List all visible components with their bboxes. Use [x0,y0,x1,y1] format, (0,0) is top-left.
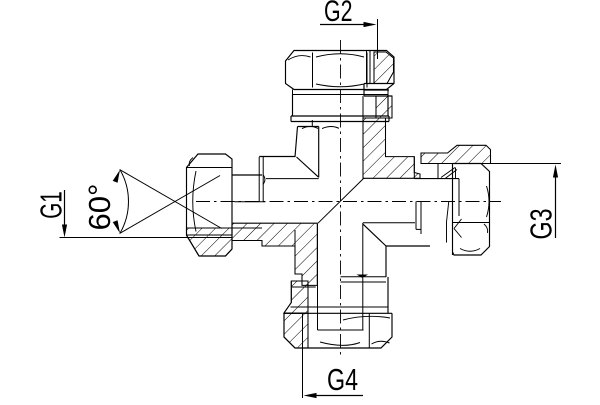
svg-text:G2: G2 [324,0,353,28]
svg-text:G3: G3 [525,209,559,240]
svg-text:G1: G1 [35,191,69,219]
svg-text:60°: 60° [82,184,117,231]
svg-text:G4: G4 [327,363,358,397]
